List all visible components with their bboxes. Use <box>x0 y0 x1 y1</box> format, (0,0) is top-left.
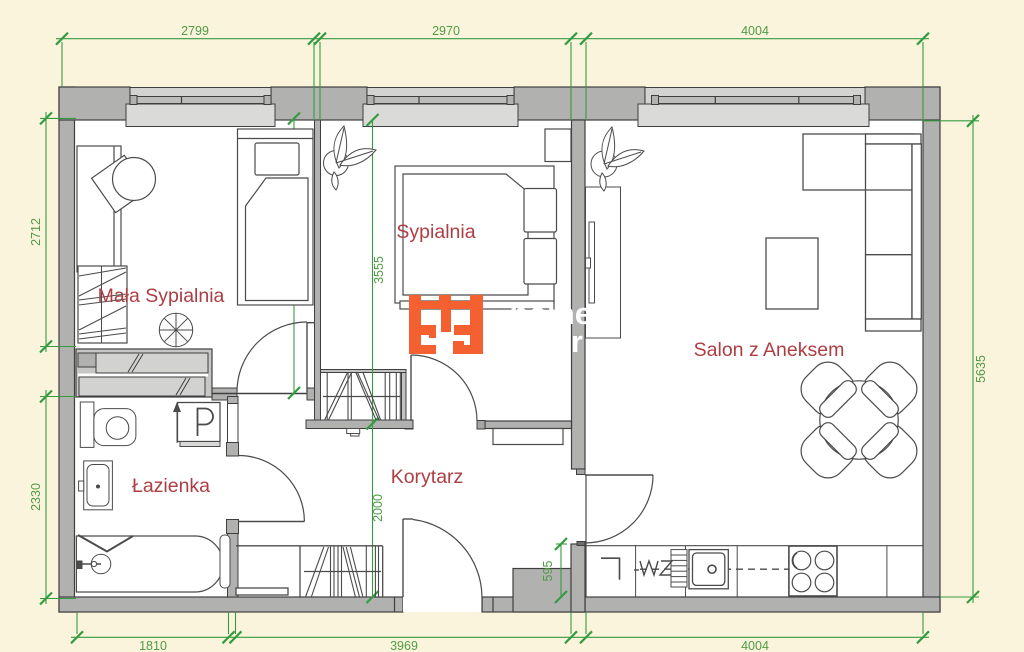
svg-text:2000: 2000 <box>371 494 385 522</box>
svg-text:2970: 2970 <box>432 24 460 38</box>
svg-text:595: 595 <box>541 561 555 582</box>
svg-text:Korytarz: Korytarz <box>391 466 464 488</box>
svg-text:Mała Sypialnia: Mała Sypialnia <box>98 285 225 307</box>
svg-text:per: per <box>535 324 583 359</box>
svg-text:Sypialnia: Sypialnia <box>396 221 475 243</box>
svg-text:4004: 4004 <box>741 639 769 652</box>
svg-text:4004: 4004 <box>741 24 769 38</box>
svg-text:2799: 2799 <box>181 24 209 38</box>
svg-text:3555: 3555 <box>372 256 386 284</box>
svg-text:2330: 2330 <box>29 483 43 511</box>
svg-text:2712: 2712 <box>29 218 43 246</box>
svg-text:Łazienka: Łazienka <box>132 475 210 497</box>
svg-text:Salon z Aneksem: Salon z Aneksem <box>694 339 845 361</box>
svg-text:3969: 3969 <box>390 639 418 652</box>
svg-text:5635: 5635 <box>974 355 988 383</box>
svg-text:1810: 1810 <box>139 639 167 652</box>
